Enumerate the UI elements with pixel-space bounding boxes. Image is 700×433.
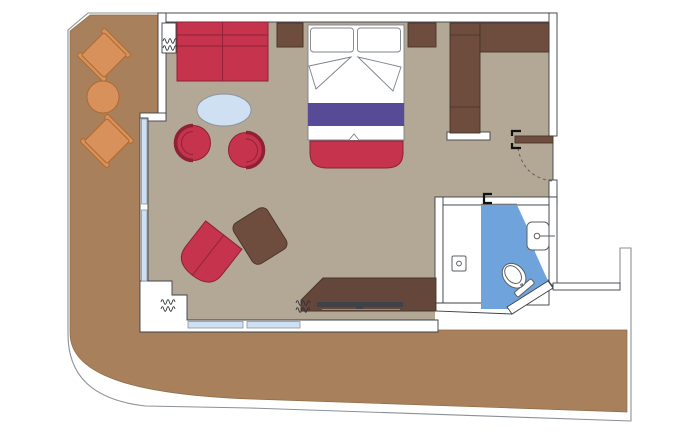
pillow-right xyxy=(358,28,401,52)
tub-chair-left xyxy=(176,126,211,161)
shower-panel xyxy=(452,256,466,271)
bathroom-wall-right xyxy=(549,197,557,285)
wardrobe-column xyxy=(450,23,480,133)
window-left xyxy=(188,322,243,329)
nightstand-left xyxy=(277,23,303,47)
nightstand-right xyxy=(408,23,436,47)
bed-runner xyxy=(308,103,404,126)
pillow-left xyxy=(311,28,354,52)
coffee-table xyxy=(197,94,251,126)
sliding-door-pane-lower xyxy=(142,210,148,281)
floor-plan: Suite floor plan with wraparound balcony xyxy=(0,0,700,433)
floor-plan-svg: Suite floor plan with wraparound balcony xyxy=(0,0,700,433)
tub-chair-right xyxy=(229,133,264,168)
window-right xyxy=(247,322,300,329)
wardrobe-top-run xyxy=(480,23,549,52)
wall-right-upper xyxy=(549,13,557,136)
desk-area xyxy=(301,278,436,311)
bed-bench xyxy=(310,141,403,168)
entry-door-leaf xyxy=(515,136,553,143)
tv xyxy=(317,302,403,307)
wall-top xyxy=(158,13,557,22)
sliding-door-pane-upper xyxy=(142,119,148,204)
exterior-wall-east xyxy=(553,283,620,290)
balcony-table xyxy=(87,81,119,113)
